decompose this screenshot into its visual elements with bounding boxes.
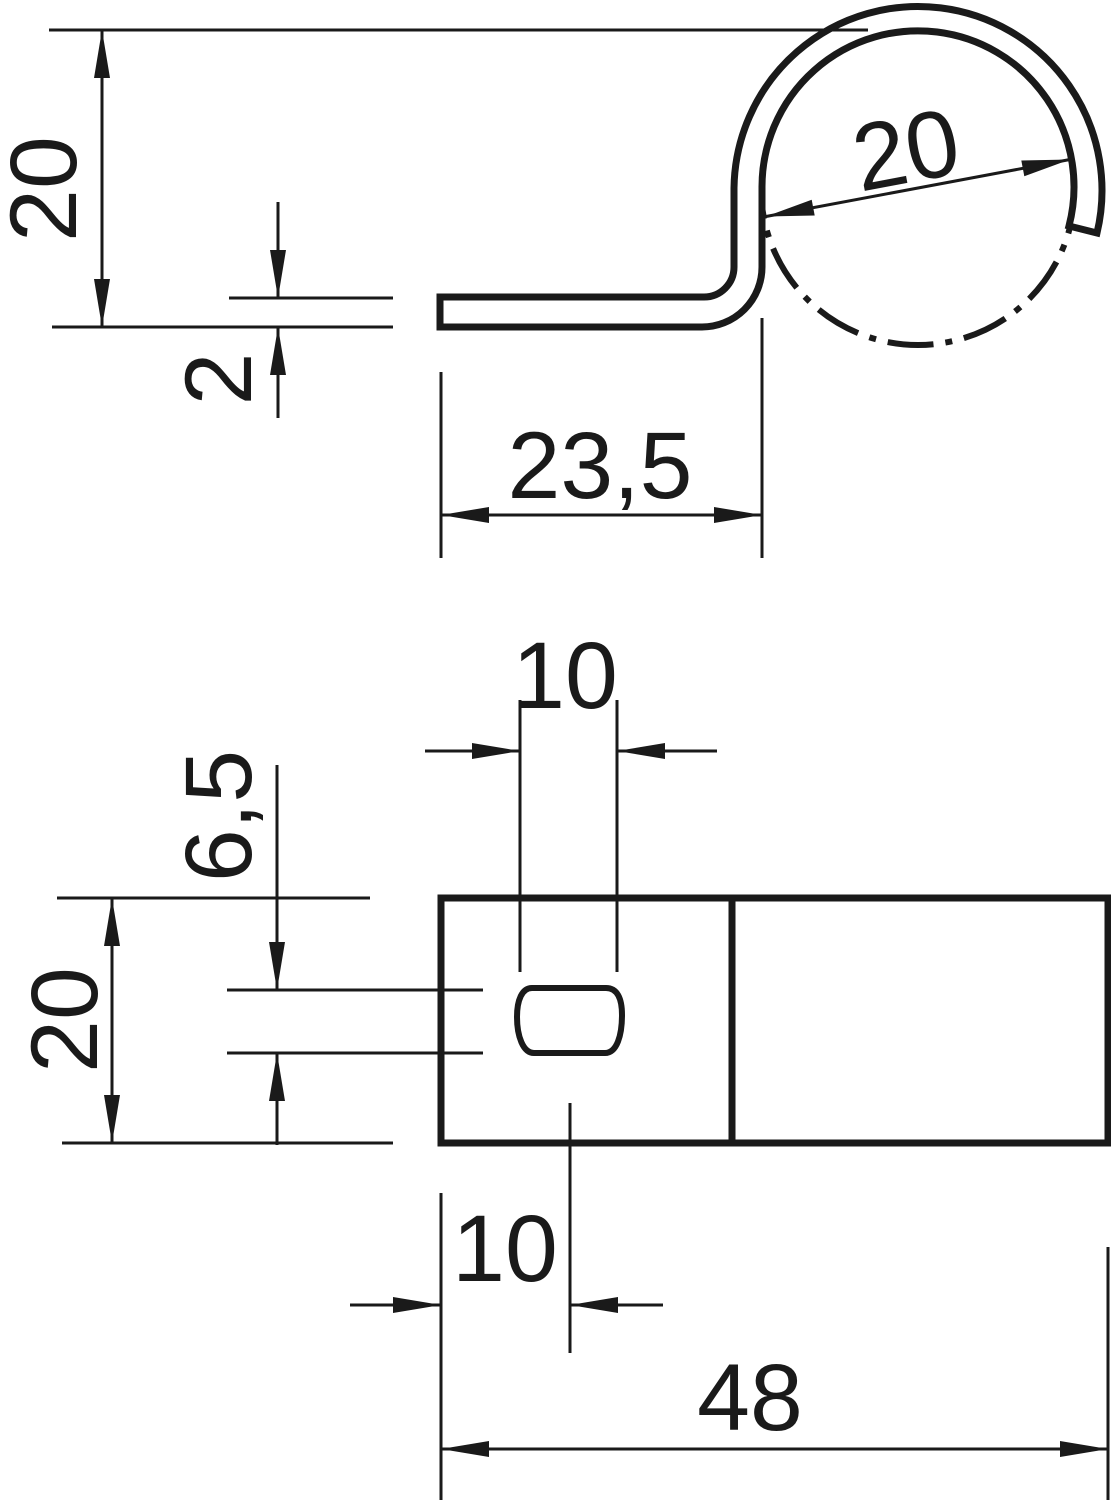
dim-plate-width: 20 <box>12 898 393 1143</box>
arrowhead-down-icon <box>269 942 285 990</box>
dim-clamp-diameter-label: 20 <box>844 89 967 213</box>
arrowhead-up-icon <box>94 30 110 78</box>
dim-side-thickness: 2 <box>166 202 286 418</box>
dim-side-height-label: 20 <box>0 136 97 242</box>
arrowhead-down-icon <box>104 1095 120 1143</box>
arrowhead-right-icon <box>714 507 762 523</box>
dim-slot-length-label: 10 <box>512 623 618 729</box>
arrowhead-left-icon <box>441 1441 489 1457</box>
dim-slot-width: 6,5 <box>166 750 483 1145</box>
arrowhead-right-icon <box>1021 160 1070 177</box>
dim-slot-offset: 10 <box>350 1103 663 1500</box>
dim-clamp-diameter: 20 <box>766 89 1070 217</box>
side-view: 20 2 20 23,5 <box>0 6 1102 558</box>
arrowhead-up-icon <box>104 898 120 946</box>
dim-side-thickness-label: 2 <box>166 353 272 406</box>
arrowhead-right-icon <box>393 1297 441 1313</box>
arrowhead-left-icon <box>570 1297 618 1313</box>
dim-foot-length: 23,5 <box>441 318 762 558</box>
arrowhead-up-icon <box>269 1053 285 1101</box>
arrowhead-down-icon <box>94 279 110 327</box>
arrowhead-down-icon <box>270 250 286 298</box>
arrowhead-up-icon <box>270 327 286 375</box>
technical-drawing-page: 20 2 20 23,5 <box>0 0 1111 1500</box>
clip-profile-path <box>440 6 1102 327</box>
dim-plate-width-label: 20 <box>12 967 118 1073</box>
dim-slot-offset-label: 10 <box>452 1196 558 1302</box>
dim-plate-length-label: 48 <box>697 1345 803 1451</box>
arrowhead-right-icon <box>472 743 520 759</box>
arrowhead-right-icon <box>1060 1441 1108 1457</box>
arrowhead-left-icon <box>766 200 815 217</box>
clip-dimension-drawing: 20 2 20 23,5 <box>0 0 1111 1500</box>
dim-foot-length-label: 23,5 <box>508 413 693 519</box>
dim-slot-width-label: 6,5 <box>166 750 272 882</box>
dim-side-height: 20 <box>0 30 110 327</box>
plate-outline <box>441 898 1108 1143</box>
plan-view: 10 6,5 20 10 <box>12 623 1108 1500</box>
arrowhead-left-icon <box>441 507 489 523</box>
arrowhead-left-icon <box>617 743 665 759</box>
